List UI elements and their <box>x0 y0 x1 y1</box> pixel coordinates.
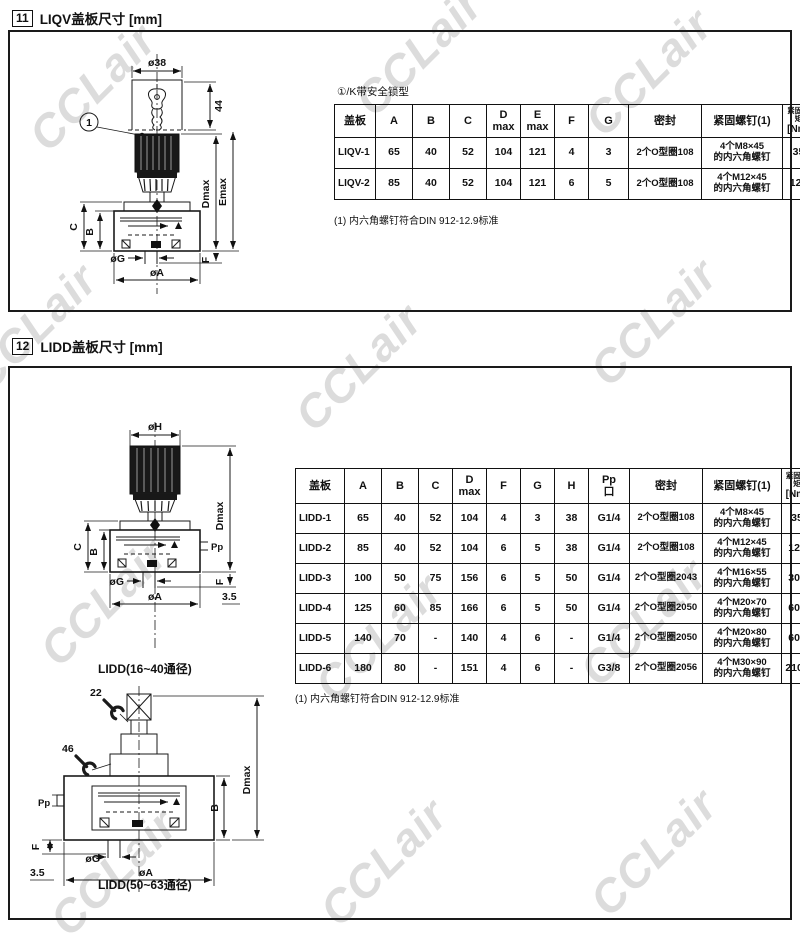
table-cell: 52 <box>419 534 453 564</box>
table-cell: G1/4 <box>589 534 630 564</box>
column-header: H <box>555 469 589 504</box>
table-cell: 65 <box>345 504 382 534</box>
dim-label-b: B <box>88 548 100 556</box>
column-header: 紧固螺钉(1) <box>703 469 782 504</box>
dim-label-b: B <box>209 804 221 812</box>
table-cell: 35 <box>782 504 800 534</box>
table-cell: 4个M12×45的内六角螺钉 <box>702 169 783 200</box>
column-header: A <box>376 105 413 138</box>
table-cell: 140 <box>345 624 382 654</box>
table-cell: 4个M20×70的内六角螺钉 <box>703 594 782 624</box>
dim-label-diag: øG <box>110 253 125 265</box>
lidd-small-caption: LIDD(16~40通径) <box>98 660 192 677</box>
column-header: B <box>413 105 450 138</box>
column-header: 盖板 <box>335 105 376 138</box>
table-cell: 4 <box>487 654 521 684</box>
table-cell: 156 <box>453 564 487 594</box>
dim-label-diag: øG <box>85 853 100 865</box>
table-cell: 85 <box>345 534 382 564</box>
table-cell: 6 <box>487 534 521 564</box>
column-header: Dmax <box>453 469 487 504</box>
table-cell: 80 <box>382 654 419 684</box>
column-header: G <box>589 105 629 138</box>
table-cell: 4 <box>487 504 521 534</box>
item-number: 1 <box>86 117 92 129</box>
dim-label-f: F <box>200 256 212 263</box>
table-cell: 125 <box>782 534 800 564</box>
section11-title-text: LIQV盖板尺寸 [mm] <box>40 8 162 28</box>
dim-label-emax: Emax <box>217 178 229 206</box>
wrench-icon <box>72 751 96 775</box>
table-cell: LIQV-2 <box>335 169 376 200</box>
table-cell: - <box>555 624 589 654</box>
column-header: 紧固螺钉(1) <box>702 105 783 138</box>
table-cell: 85 <box>419 594 453 624</box>
table-cell: 125 <box>345 594 382 624</box>
dim-label-f: F <box>214 578 226 585</box>
table-cell: LIDD-1 <box>296 504 345 534</box>
table-cell: 3 <box>589 138 629 169</box>
dim-label-diaa: øA <box>148 591 162 603</box>
dim-label-diag: øG <box>109 576 124 588</box>
table-cell: G3/8 <box>589 654 630 684</box>
table-cell: LIDD-2 <box>296 534 345 564</box>
table-cell: 4个M30×90的内六角螺钉 <box>703 654 782 684</box>
column-header: 密封 <box>630 469 703 504</box>
table-cell: 121 <box>521 138 555 169</box>
table-row: LIDD-618080-15146-G3/82个O型圈20564个M30×90的… <box>296 654 800 684</box>
column-header: 紧固力矩[Nm] <box>783 105 800 138</box>
table-cell: 4个M16×55的内六角螺钉 <box>703 564 782 594</box>
table-cell: 5 <box>589 169 629 200</box>
table-cell: 104 <box>453 534 487 564</box>
dim-label-c: C <box>68 223 80 231</box>
liqv-technical-drawing: ø38 44 1 <box>32 44 322 302</box>
table-cell: 52 <box>419 504 453 534</box>
table-cell: 38 <box>555 504 589 534</box>
knob-skirt <box>133 494 177 512</box>
table-cell: 38 <box>555 534 589 564</box>
table-cell: 6 <box>487 594 521 624</box>
table-cell: 40 <box>413 138 450 169</box>
column-header: F <box>487 469 521 504</box>
dim-label-dmax: Dmax <box>200 180 212 209</box>
dim-label-b: B <box>84 228 96 236</box>
table-cell: 50 <box>382 564 419 594</box>
table-row: LIQV-2854052104121652个O型圈1084个M12×45的内六角… <box>335 169 800 200</box>
table-row: LIDD-514070-14046-G1/42个O型圈20504个M20×80的… <box>296 624 800 654</box>
table-cell: 70 <box>382 624 419 654</box>
table-cell: 60 <box>382 594 419 624</box>
table-cell: LIDD-3 <box>296 564 345 594</box>
column-header: B <box>382 469 419 504</box>
table-cell: 6 <box>555 169 589 200</box>
dim-label-c: C <box>72 543 84 551</box>
section11-number: 11 <box>12 10 33 27</box>
table-cell: 125 <box>783 169 800 200</box>
table-cell: G1/4 <box>589 594 630 624</box>
table-row: LIDD-412560851666550G1/42个O型圈20504个M20×7… <box>296 594 800 624</box>
lidd-large-caption: LIDD(50~63通径) <box>98 876 192 893</box>
section12-title: 12 LIDD盖板尺寸 [mm] <box>12 336 163 356</box>
table-cell: 4个M12×45的内六角螺钉 <box>703 534 782 564</box>
dim-label-f: F <box>30 843 42 850</box>
column-header: F <box>555 105 589 138</box>
table-cell: 4个M8×45的内六角螺钉 <box>702 138 783 169</box>
table-cell: 4 <box>555 138 589 169</box>
table-cell: 300 <box>782 564 800 594</box>
table-cell: 166 <box>453 594 487 624</box>
column-header: Pp口 <box>589 469 630 504</box>
column-header: Dmax <box>487 105 521 138</box>
table-row: LIQV-1654052104121432个O型圈1084个M8×45的内六角螺… <box>335 138 800 169</box>
section12-frame: øH <box>8 366 792 920</box>
table-cell: 104 <box>453 504 487 534</box>
column-header: 紧固力矩[Nm] <box>782 469 800 504</box>
table-cell: 104 <box>487 169 521 200</box>
table-cell: - <box>555 654 589 684</box>
table-row: LIDD-28540521046538G1/42个O型圈1084个M12×45的… <box>296 534 800 564</box>
table-cell: 4个M8×45的内六角螺钉 <box>703 504 782 534</box>
table-cell: 104 <box>487 138 521 169</box>
table-cell: G1/4 <box>589 564 630 594</box>
table-cell: 75 <box>419 564 453 594</box>
dim-label-diah: øH <box>148 421 162 433</box>
table-cell: LIDD-4 <box>296 594 345 624</box>
table-cell: 2个O型圈108 <box>630 504 703 534</box>
liqv-footnote: (1) 内六角螺钉符合DIN 912-12.9标准 <box>334 212 498 227</box>
section11-title: 11 LIQV盖板尺寸 [mm] <box>12 8 162 28</box>
table-cell: 600 <box>782 624 800 654</box>
knurled-knob <box>135 134 179 172</box>
table-cell: 6 <box>521 624 555 654</box>
dim-label-dia38: ø38 <box>148 57 166 69</box>
table-cell: - <box>419 624 453 654</box>
table-cell: 2个O型圈2050 <box>630 624 703 654</box>
table-cell: 2个O型圈2056 <box>630 654 703 684</box>
wrench-icon <box>100 695 124 719</box>
table-cell: 40 <box>413 169 450 200</box>
table-cell: 140 <box>453 624 487 654</box>
table-cell: 121 <box>521 169 555 200</box>
table-cell: 52 <box>450 169 487 200</box>
section12-number: 12 <box>12 338 33 355</box>
table-cell: LIQV-1 <box>335 138 376 169</box>
table-cell: 40 <box>382 504 419 534</box>
table-cell: 50 <box>555 564 589 594</box>
section12-title-text: LIDD盖板尺寸 [mm] <box>40 336 162 356</box>
table-cell: 52 <box>450 138 487 169</box>
table-cell: 50 <box>555 594 589 624</box>
table-cell: G1/4 <box>589 624 630 654</box>
table-cell: 6 <box>487 564 521 594</box>
table-cell: 2个O型圈108 <box>629 169 702 200</box>
table-cell: 600 <box>782 594 800 624</box>
column-header: C <box>450 105 487 138</box>
table-cell: 35 <box>783 138 800 169</box>
dim-label-offset: 3.5 <box>222 591 237 603</box>
dim-label-44: 44 <box>213 100 225 112</box>
table-cell: LIDD-5 <box>296 624 345 654</box>
table-cell: 151 <box>453 654 487 684</box>
table-cell: 4 <box>487 624 521 654</box>
table-row: LIDD-16540521044338G1/42个O型圈1084个M8×45的内… <box>296 504 800 534</box>
dim-label-dmax: Dmax <box>214 502 226 531</box>
column-header: C <box>419 469 453 504</box>
lidd-dimensions-table: 盖板ABCDmaxFGHPp口密封紧固螺钉(1)紧固力矩[Nm]重量[kg]LI… <box>295 468 800 684</box>
table-cell: G1/4 <box>589 504 630 534</box>
table-cell: 5 <box>521 534 555 564</box>
lidd-small-technical-drawing: øH <box>40 416 290 661</box>
table-cell: 5 <box>521 594 555 624</box>
table-cell: 2个O型圈108 <box>630 534 703 564</box>
lidd-footnote: (1) 内六角螺钉符合DIN 912-12.9标准 <box>295 690 459 705</box>
column-header: 密封 <box>629 105 702 138</box>
table-cell: 2100 <box>782 654 800 684</box>
dim-label-pp: Pp <box>211 542 223 553</box>
table-cell: 2个O型圈2050 <box>630 594 703 624</box>
dim-label-offset: 3.5 <box>30 867 45 879</box>
table-cell: 40 <box>382 534 419 564</box>
table-cell: 3 <box>521 504 555 534</box>
table-cell: 5 <box>521 564 555 594</box>
column-header: G <box>521 469 555 504</box>
column-header: A <box>345 469 382 504</box>
table-cell: 6 <box>521 654 555 684</box>
table-row: LIDD-310050751566550G1/42个O型圈20434个M16×5… <box>296 564 800 594</box>
wrench-size-label: 22 <box>90 687 102 699</box>
column-header: Emax <box>521 105 555 138</box>
table-cell: 180 <box>345 654 382 684</box>
table-cell: 2个O型圈2043 <box>630 564 703 594</box>
table-cell: 65 <box>376 138 413 169</box>
table-cell: 4个M20×80的内六角螺钉 <box>703 624 782 654</box>
table-cell: - <box>419 654 453 684</box>
section11-frame: ø38 44 1 <box>8 30 792 312</box>
knurled-knob <box>130 446 180 494</box>
table-cell: LIDD-6 <box>296 654 345 684</box>
dim-label-dmax: Dmax <box>241 766 253 795</box>
table-cell: 85 <box>376 169 413 200</box>
dim-label-pp: Pp <box>38 798 50 809</box>
liqv-dimensions-table: 盖板ABCDmaxEmaxFG密封紧固螺钉(1)紧固力矩[Nm]重量[kg]LI… <box>334 104 800 200</box>
dim-label-diaa: øA <box>150 267 164 279</box>
column-header: 盖板 <box>296 469 345 504</box>
table-cell: 2个O型圈108 <box>629 138 702 169</box>
liqv-note: ①/K带安全锁型 <box>337 84 409 99</box>
table-cell: 100 <box>345 564 382 594</box>
wrench-size-label: 46 <box>62 743 74 755</box>
